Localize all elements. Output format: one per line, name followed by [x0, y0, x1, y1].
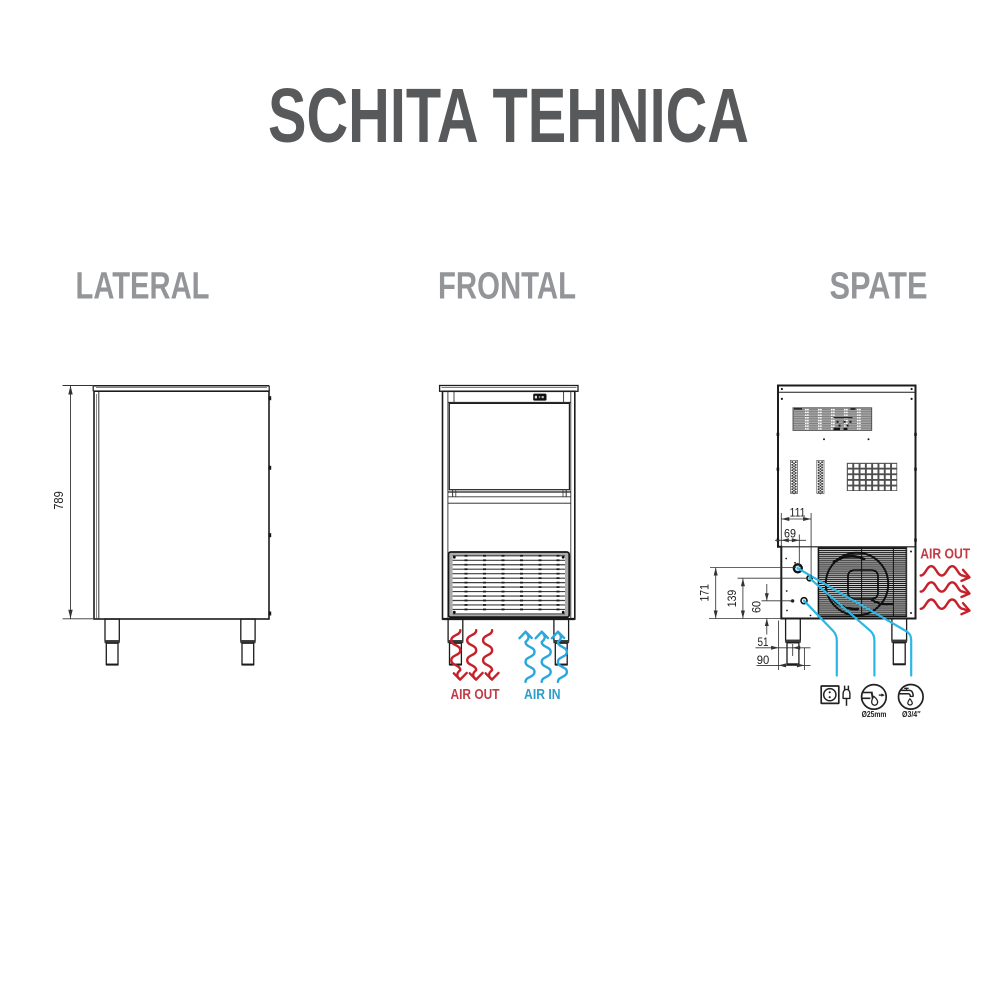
svg-text:60: 60 — [749, 601, 763, 613]
svg-text:111: 111 — [790, 505, 806, 519]
svg-text:51: 51 — [758, 635, 769, 649]
svg-text:Ø25mm: Ø25mm — [862, 709, 887, 719]
svg-text:90: 90 — [757, 653, 770, 667]
svg-text:Ø3/4″: Ø3/4″ — [902, 709, 921, 719]
svg-text:AIR OUT: AIR OUT — [920, 546, 970, 562]
svg-text:SPATE: SPATE — [830, 265, 928, 307]
svg-text:SCHITA TEHNICA: SCHITA TEHNICA — [268, 73, 749, 159]
svg-text:FRONTAL: FRONTAL — [438, 265, 576, 307]
svg-text:789: 789 — [52, 491, 66, 510]
svg-text:171: 171 — [698, 584, 712, 602]
svg-text:AIR OUT: AIR OUT — [451, 687, 500, 703]
svg-text:139: 139 — [725, 590, 739, 608]
svg-text:69: 69 — [784, 527, 796, 541]
svg-text:LATERAL: LATERAL — [76, 265, 210, 307]
svg-text:AIR IN: AIR IN — [524, 687, 561, 703]
